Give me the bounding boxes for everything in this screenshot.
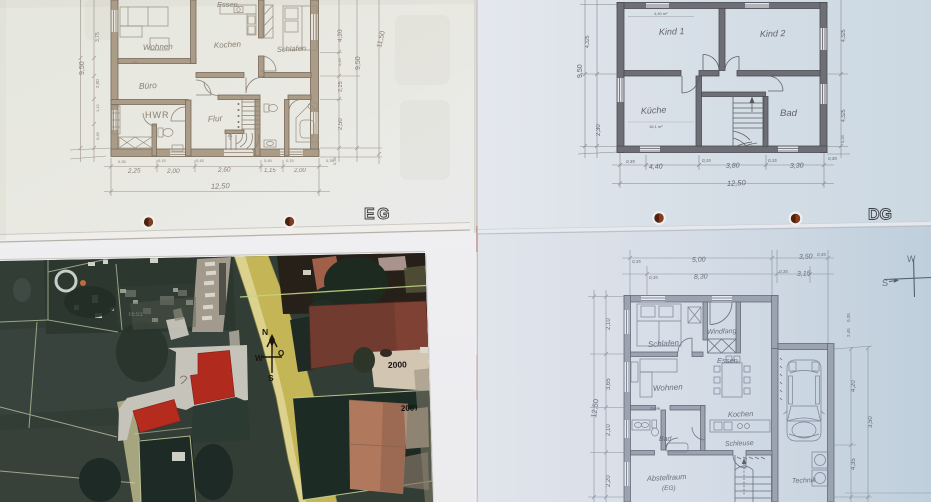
svg-text:2,50: 2,50 [338, 118, 344, 130]
svg-text:9,50: 9,50 [577, 64, 584, 78]
svg-text:2,60: 2,60 [217, 167, 231, 174]
svg-text:4,325: 4,325 [841, 109, 847, 122]
svg-text:0,35: 0,35 [817, 252, 826, 257]
svg-text:2,25: 2,25 [127, 168, 141, 175]
svg-text:12,50: 12,50 [211, 181, 231, 191]
svg-text:9,50: 9,50 [79, 61, 86, 75]
svg-text:0,33: 0,33 [840, 134, 845, 143]
svg-text:4,20: 4,20 [337, 29, 344, 42]
svg-text:HWR: HWR [145, 110, 170, 120]
svg-text:3,50: 3,50 [799, 254, 813, 261]
svg-text:N: N [262, 327, 268, 337]
svg-text:Windfang: Windfang [707, 328, 737, 336]
svg-text:0,35: 0,35 [779, 269, 788, 274]
svg-text:2,20: 2,20 [606, 475, 612, 487]
svg-text:0,15: 0,15 [286, 158, 295, 163]
svg-text:1,15: 1,15 [264, 168, 276, 174]
svg-text:Schlafen: Schlafen [648, 338, 680, 349]
svg-text:Flur: Flur [207, 113, 223, 124]
svg-text:Büro: Büro [139, 80, 158, 91]
svg-text:3,50: 3,50 [868, 416, 874, 428]
svg-text:2,25: 2,25 [338, 81, 344, 92]
svg-text:2,00: 2,00 [95, 79, 100, 88]
svg-text:2,10: 2,10 [606, 424, 612, 436]
svg-text:Schlafen: Schlafen [277, 43, 307, 54]
svg-text:0,45: 0,45 [95, 131, 100, 140]
svg-text:8,30: 8,30 [694, 274, 708, 281]
svg-text:0,45: 0,45 [264, 158, 273, 163]
svg-text:0,35: 0,35 [626, 159, 635, 164]
svg-text:3,75: 3,75 [95, 32, 101, 42]
svg-text:3,65: 3,65 [606, 378, 612, 390]
svg-text:Kind 2: Kind 2 [760, 28, 786, 39]
svg-text:9,50: 9,50 [355, 56, 362, 70]
svg-text:2007: 2007 [401, 403, 420, 413]
svg-text:0,15: 0,15 [702, 158, 711, 163]
svg-text:2,45: 2,45 [846, 328, 851, 337]
svg-text:4,325: 4,325 [841, 29, 847, 42]
svg-text:(EG): (EG) [662, 485, 676, 492]
svg-text:0,45: 0,45 [337, 57, 342, 66]
svg-text:3,15: 3,15 [797, 271, 811, 278]
svg-text:W: W [255, 354, 263, 363]
svg-text:4,325: 4,325 [585, 35, 591, 48]
svg-text:S: S [882, 278, 888, 288]
svg-text:O: O [278, 349, 284, 358]
svg-text:S: S [268, 373, 274, 383]
svg-text:0,15: 0,15 [158, 158, 167, 163]
svg-text:4,20: 4,20 [851, 380, 857, 392]
svg-text:Schleuse: Schleuse [725, 440, 754, 448]
svg-text:Bad: Bad [780, 108, 798, 119]
svg-text:0,15: 0,15 [768, 158, 777, 163]
svg-text:2,00: 2,00 [166, 168, 180, 175]
svg-text:Technik: Technik [792, 477, 817, 485]
svg-text:W: W [907, 254, 916, 264]
svg-text:DG: DG [868, 207, 892, 224]
svg-text:1,12: 1,12 [95, 103, 100, 112]
svg-text:4,40: 4,40 [649, 164, 663, 171]
svg-text:0,35: 0,35 [828, 156, 837, 161]
svg-text:4,40 m²: 4,40 m² [654, 11, 668, 16]
svg-text:Kochen: Kochen [214, 40, 242, 50]
svg-text:Essen: Essen [717, 356, 738, 365]
svg-text:0,45: 0,45 [196, 158, 205, 163]
svg-text:2,30: 2,30 [596, 124, 602, 136]
svg-text:EG: EG [364, 206, 392, 223]
svg-text:16,1 m²: 16,1 m² [649, 124, 663, 129]
svg-text:Wohnen: Wohnen [143, 42, 174, 52]
svg-text:Diele: Diele [650, 406, 661, 411]
svg-text:Kochen: Kochen [728, 409, 754, 419]
svg-text:0,35: 0,35 [846, 313, 851, 322]
svg-text:2,00: 2,00 [293, 168, 306, 174]
svg-text:3,30: 3,30 [790, 163, 804, 170]
svg-text:5,00: 5,00 [692, 257, 706, 264]
svg-text:Kind 1: Kind 1 [659, 26, 685, 37]
svg-text:2,10: 2,10 [606, 318, 612, 330]
svg-text:Essen: Essen [217, 0, 238, 9]
svg-text:0,35: 0,35 [632, 259, 641, 264]
svg-text:0,35: 0,35 [332, 156, 337, 165]
svg-text:Küche: Küche [641, 105, 667, 116]
svg-text:3,80: 3,80 [726, 163, 740, 170]
svg-text:0,35: 0,35 [649, 275, 658, 280]
svg-text:Bad: Bad [659, 436, 673, 443]
svg-text:2000: 2000 [388, 359, 408, 370]
svg-text:WC: WC [132, 60, 139, 65]
svg-text:4,35: 4,35 [851, 458, 857, 470]
svg-text:Wohnen: Wohnen [653, 382, 684, 393]
svg-text:0,35: 0,35 [118, 159, 127, 164]
svg-text:12,50: 12,50 [727, 178, 747, 188]
